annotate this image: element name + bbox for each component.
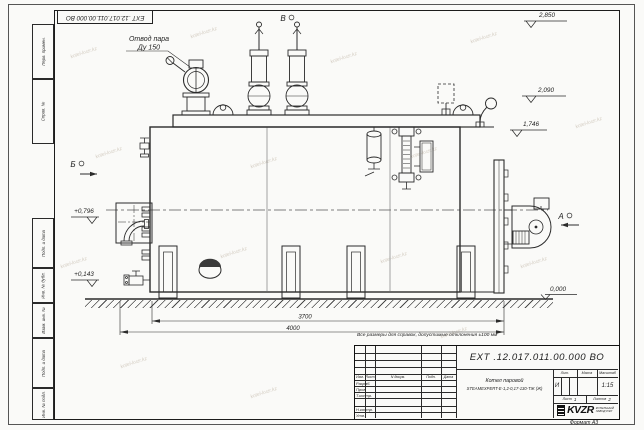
tb-listov-label: Листов — [593, 397, 606, 401]
tb-lit-label: Лит. — [553, 369, 577, 377]
tb-row-nkontr: Н.контр. — [356, 407, 375, 412]
burner — [504, 198, 551, 248]
tb-row-utv: Утв. — [356, 413, 375, 418]
support-legs — [159, 246, 475, 298]
tb-product-name-line2: STEAMEXPERT-Е-1,2-0,17-130-ТЖ (Ж) — [467, 386, 543, 391]
elevation-0796: +0,796 — [74, 208, 94, 215]
elevation-2090: 2,090 — [537, 87, 554, 94]
tb-row-prov: Пров. — [356, 387, 375, 392]
view-arrow-b-left — [79, 161, 97, 176]
tb-listov-value: 2 — [608, 397, 611, 402]
lifting-lug — [453, 105, 473, 115]
front-nozzles — [142, 207, 150, 260]
view-arrow-a-right — [561, 213, 579, 227]
tb-masshtab-label: Масштаб — [597, 369, 618, 377]
view-letter-a: А — [557, 212, 563, 221]
level-gauge-plate — [414, 141, 433, 172]
tb-row-tkontr: Т.контр. — [356, 393, 375, 398]
drawing-sheet: kotel-kvzr.kz kotel-kvzr.kz kotel-kvzr.k… — [0, 0, 644, 430]
manhole — [199, 259, 221, 278]
elevation-2850: 2,850 — [538, 12, 555, 19]
tb-header-podp: Подп. — [421, 374, 441, 380]
view-letter-b: Б — [70, 160, 75, 169]
kvzr-logo-sub2: ЗАВОД РЭП — [596, 410, 614, 413]
view-label-v-top — [289, 15, 294, 20]
tb-header-doc: N докум. — [375, 374, 421, 380]
tb-row-razrab: Разраб. — [356, 381, 375, 386]
instrument-dashed-box — [438, 84, 454, 115]
front-top-valve — [140, 138, 149, 157]
dimension-3700 — [120, 301, 504, 335]
elevation-0000: 0,000 — [550, 286, 566, 293]
pressure-gauge-siphon — [476, 98, 497, 127]
tb-company-logo: KVZR КОТЕЛЬНЫЙ ЗАВОД РЭП — [553, 403, 618, 417]
kvzr-coil-icon — [557, 405, 565, 416]
view-letter-v: В — [280, 14, 286, 23]
steam-outlet-label-1: Отвод пара — [129, 35, 169, 43]
tb-header-izm: Изм. — [355, 374, 365, 380]
tb-product-name-line1: Котел паровой — [485, 378, 523, 384]
sampling-cooler — [365, 127, 381, 176]
kvzr-logo-text: KVZR — [567, 404, 594, 416]
lifting-lug — [213, 105, 233, 115]
tb-header-data: Дата — [441, 374, 456, 380]
title-block: Изм. Лист N докум. Подп. Дата Разраб. Пр… — [354, 345, 620, 420]
water-level-gauge — [392, 127, 421, 189]
tb-lit-value: И — [553, 377, 561, 395]
front-elbow-box — [116, 203, 152, 245]
tb-list-cell: Лист 1 — [553, 395, 586, 403]
steam-outlet-label-2: Ду 150 — [137, 45, 160, 52]
drain-valve — [124, 271, 150, 285]
tb-list-value: 1 — [574, 397, 577, 402]
safety-valve — [285, 22, 309, 115]
tb-product-name: Котел паровой STEAMEXPERT-Е-1,2-0,17-130… — [456, 369, 553, 418]
tb-header-list: Лист — [365, 374, 375, 380]
safety-valve — [247, 22, 271, 115]
tb-doc-number: ЕХТ .12.017.011.00.000 ВО — [456, 346, 618, 369]
steam-label-leader — [126, 51, 190, 67]
elevation-1746: 1,746 — [523, 121, 539, 128]
tb-masshtab-value: 1:15 — [597, 377, 618, 395]
tb-listov-cell: Листов 2 — [586, 395, 618, 403]
elevation-0143: +0,143 — [74, 271, 94, 278]
dim-3700-label: 3700 — [298, 315, 312, 321]
tb-massa-label: Масса — [577, 369, 597, 377]
dim-4000-label: 4000 — [286, 326, 300, 332]
tb-list-label: Лист — [563, 397, 572, 401]
format-label: Формат А3 — [548, 420, 620, 426]
reference-note: Все размеры для справок, допустимые откл… — [357, 333, 587, 338]
